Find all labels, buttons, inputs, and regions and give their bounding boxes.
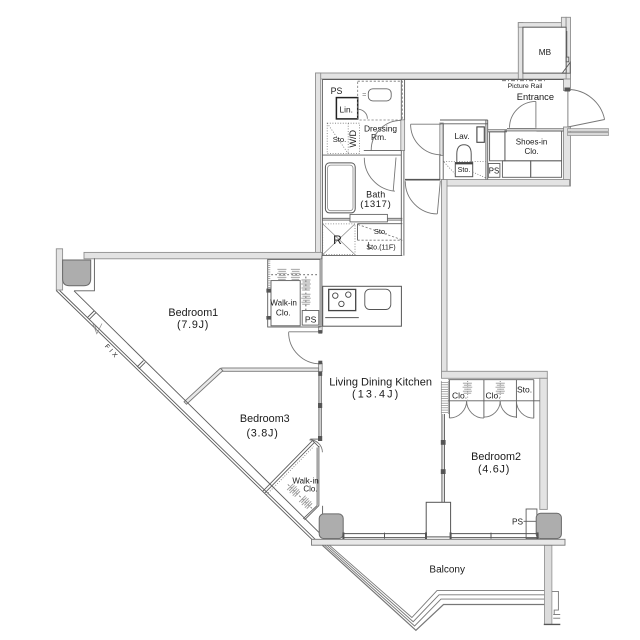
svg-text:PS: PS: [512, 517, 524, 527]
svg-text:W/D: W/D: [348, 130, 358, 148]
svg-text:Rm.: Rm.: [371, 132, 386, 142]
svg-text:Sto.(11F): Sto.(11F): [366, 243, 395, 252]
svg-text:Walk-in: Walk-in: [270, 298, 297, 307]
svg-text:Living Dining Kitchen: Living Dining Kitchen: [329, 376, 432, 388]
svg-text:R: R: [333, 233, 342, 247]
svg-text:(4.6J): (4.6J): [478, 464, 510, 476]
svg-text:Sto.: Sto.: [458, 165, 471, 174]
svg-text:PS: PS: [305, 315, 317, 325]
svg-text:Clo.: Clo.: [452, 391, 467, 401]
svg-text:PS: PS: [331, 86, 343, 96]
svg-text:Lav.: Lav.: [454, 131, 469, 141]
svg-text:Lin.: Lin.: [340, 105, 353, 115]
svg-text:Shoes-in: Shoes-in: [516, 138, 548, 147]
svg-text:MB: MB: [539, 48, 552, 57]
svg-text:Sto.: Sto.: [374, 227, 387, 236]
svg-text:Sto.: Sto.: [333, 135, 347, 144]
svg-text:(3.8J): (3.8J): [246, 427, 278, 439]
svg-text:Clo.: Clo.: [276, 307, 291, 317]
svg-text:Bedroom3: Bedroom3: [240, 413, 290, 425]
svg-text:Entrance: Entrance: [517, 92, 554, 102]
svg-text:PS: PS: [489, 167, 499, 176]
svg-text:Bedroom1: Bedroom1: [168, 307, 218, 319]
svg-text:Balcony: Balcony: [429, 565, 465, 576]
svg-text:(7.9J): (7.9J): [177, 319, 209, 331]
svg-text:Clo.: Clo.: [524, 147, 538, 156]
svg-text:(1317): (1317): [360, 199, 391, 210]
svg-text:Bedroom2: Bedroom2: [471, 451, 521, 463]
svg-text:Picture Rail: Picture Rail: [508, 83, 543, 90]
svg-text:(13.4J): (13.4J): [352, 389, 400, 401]
svg-text:Sto.: Sto.: [517, 385, 532, 395]
svg-text:Clo.: Clo.: [485, 391, 500, 401]
svg-text:Clo.: Clo.: [303, 485, 317, 494]
